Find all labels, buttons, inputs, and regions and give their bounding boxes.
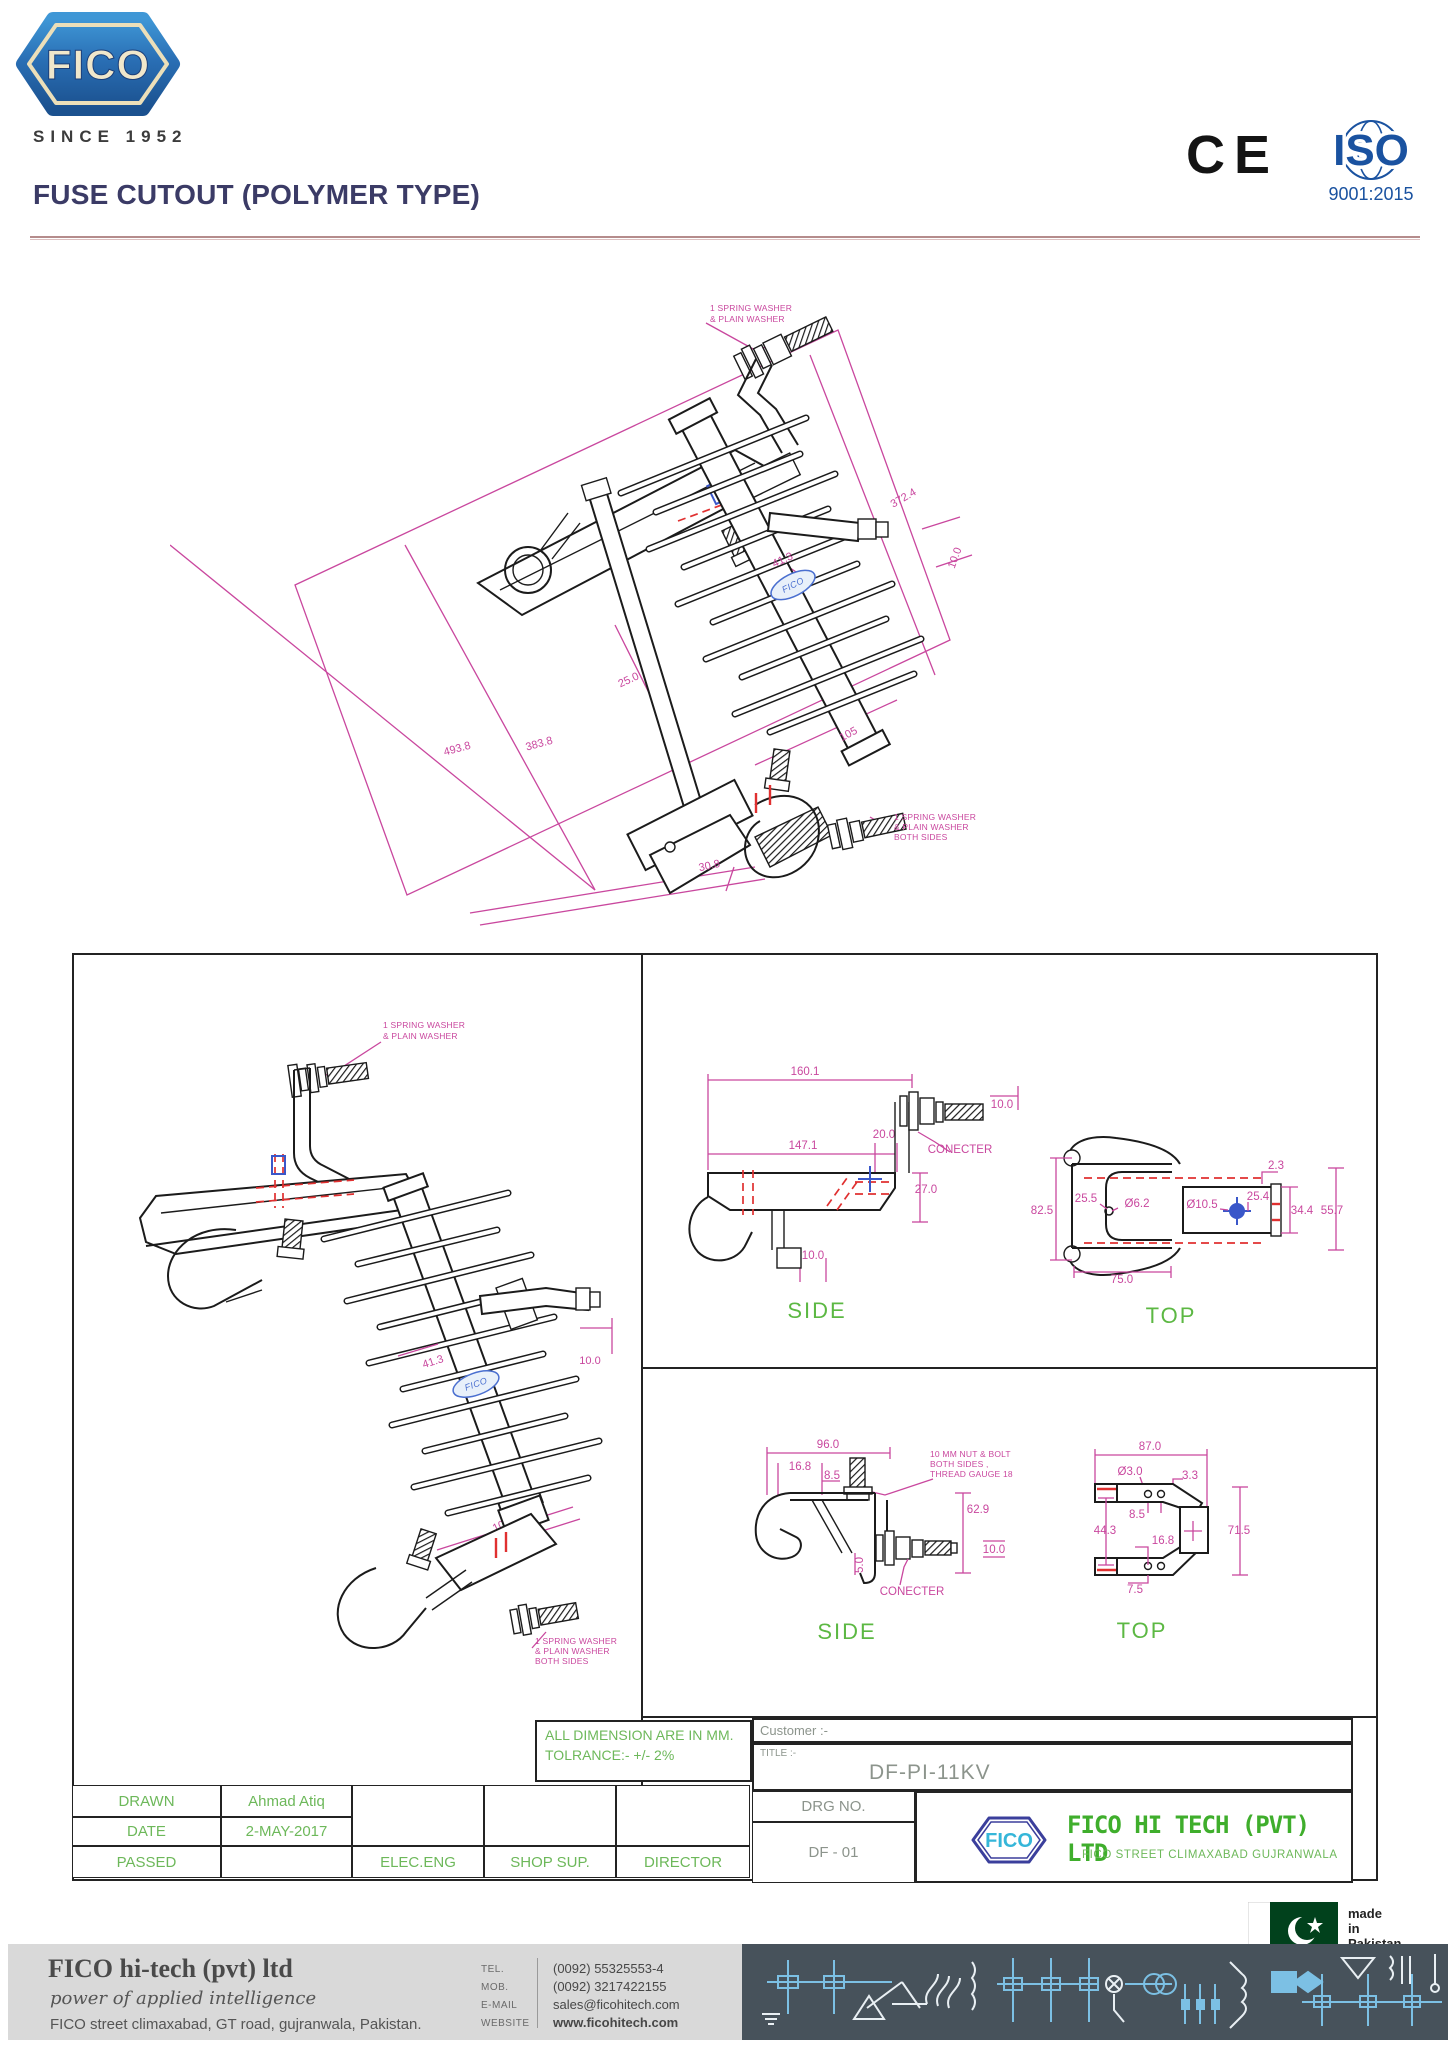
header-rule-shadow <box>30 239 1420 240</box>
side-view-upper-drawing: 160.1 10.0 20.0 147.1 CONECTER 27.0 10.0 <box>650 1010 1050 1340</box>
tolerance-note-box: ALL DIMENSION ARE IN MM. TOLRANCE:- +/- … <box>535 1720 752 1782</box>
isometric-cutout-drawing: FICO <box>170 245 990 945</box>
sv1-dim-foot: 10.0 <box>802 1250 824 1262</box>
drawing-title-value: DF-PI-11KV <box>869 1761 991 1785</box>
tv2-dim-tab: 7.5 <box>1127 1584 1143 1596</box>
sv1-view-label: SIDE <box>787 1298 846 1323</box>
fv-dim-terminal-label: 10.0 <box>579 1355 600 1367</box>
iso-note-bottom-3: BOTH SIDES <box>894 832 948 842</box>
footer-email-label: E-MAIL <box>481 2000 517 2011</box>
sv2-connector-label: CONECTER <box>880 1586 945 1598</box>
fv-note-bottom-3: BOTH SIDES <box>535 1656 589 1666</box>
dim-tube-label: 25.0 <box>616 670 640 690</box>
ce-mark-logo: CE <box>1186 124 1279 186</box>
sv2-dim-foot: 5.0 <box>854 1557 866 1573</box>
sv1-connector-label: CONECTER <box>928 1144 993 1156</box>
tv1-dia-large: Ø10.5 <box>1186 1199 1217 1211</box>
tv1-dim-plate: 2.3 <box>1268 1160 1284 1172</box>
fv-insulator-body <box>384 1173 543 1516</box>
iso-note-bottom-1: 1 SPRING WASHER <box>894 812 976 822</box>
dim-overall-label: 372.4 <box>889 486 919 510</box>
tv2-dim-lip: 3.3 <box>1182 1470 1198 1482</box>
frame-horizontal-divider-1 <box>641 1367 1378 1369</box>
iso-subtext: 9001:2015 <box>1328 184 1413 204</box>
fv-note-top-1: 1 SPRING WASHER <box>383 1020 465 1030</box>
sv2-note-1: 10 MM NUT & BOLT <box>930 1449 1011 1459</box>
title-label: TITLE :- <box>760 1748 796 1759</box>
company-cell: FICO FICO HI TECH (PVT) LTD FICO STREET … <box>915 1791 1353 1883</box>
tv2-dim-hole-gap: 8.5 <box>1129 1509 1145 1521</box>
frame-vertical-divider <box>641 953 643 1785</box>
date-value-cell: 2-MAY-2017 <box>221 1817 352 1846</box>
terminal-arm <box>768 513 860 541</box>
footer-company-name: FICO hi-tech (pvt) ltd <box>48 1954 293 1984</box>
sv2-dim-step: 8.5 <box>824 1470 840 1482</box>
tv1-dim-hole-offset2: 25.4 <box>1247 1191 1270 1203</box>
footer-email-value: sales@ficohitech.com <box>553 1997 680 2012</box>
footer-schematic-band <box>742 1944 1448 2040</box>
sv2-view-label: SIDE <box>817 1619 876 1644</box>
company-logo: FICO <box>965 1813 1053 1867</box>
footer-website-value: www.ficohitech.com <box>553 2015 678 2030</box>
sv2-note-3: THREAD GAUGE 18 <box>930 1469 1013 1479</box>
tv2-head <box>1180 1507 1208 1553</box>
sig2-space-cell <box>484 1785 616 1846</box>
made-in-line1: made <box>1348 1906 1401 1921</box>
tv1-view-label: TOP <box>1146 1303 1197 1328</box>
tv2-dim-hole-offset: 16.8 <box>1152 1535 1174 1547</box>
tv2-dia-hole: Ø3.0 <box>1118 1466 1143 1478</box>
fv-hinge-side-bolt <box>509 1596 579 1637</box>
fv-note-bottom-2: & PLAIN WASHER <box>535 1646 610 1656</box>
tolerance-note-line1: ALL DIMENSION ARE IN MM. <box>545 1727 742 1743</box>
drawn-label-cell: DRAWN <box>72 1785 221 1817</box>
iso-note-top-2: & PLAIN WASHER <box>710 314 785 324</box>
tv2-dim-total: 87.0 <box>1139 1441 1161 1453</box>
drawn-value-cell: Ahmad Atiq <box>221 1785 352 1817</box>
tv1-dim-hole-offset: 25.5 <box>1075 1193 1097 1205</box>
iso-note-top-1: 1 SPRING WASHER <box>710 303 792 313</box>
footer-tagline: power of applied intelligence <box>50 1988 316 2009</box>
dim-bounding-box <box>295 330 950 895</box>
sv1-dim-height: 27.0 <box>915 1184 937 1196</box>
footer-circuit-schematic <box>742 1944 1448 2040</box>
side-view-lower-drawing: 96.0 16.8 8.5 10 MM NUT & BOLT BOTH SIDE… <box>700 1395 1100 1695</box>
sv2-side-bolt <box>876 1531 957 1565</box>
passed-value-cell <box>221 1846 352 1878</box>
sv1-dim-total: 160.1 <box>791 1066 820 1078</box>
fico-logo: FICO <box>13 8 183 120</box>
sv2-hook <box>756 1493 801 1559</box>
sig3-label-cell: DIRECTOR <box>616 1846 750 1878</box>
drg-no-value-cell: DF - 01 <box>752 1822 915 1883</box>
tv1-dia-small: Ø6.2 <box>1125 1198 1150 1210</box>
footer-left-band: FICO hi-tech (pvt) ltd power of applied … <box>8 1944 742 2040</box>
footer-mob-label: MOB. <box>481 1982 509 1993</box>
passed-label-cell: PASSED <box>72 1846 221 1878</box>
iso-text: ISO <box>1333 126 1409 175</box>
fv-note-top-2: & PLAIN WASHER <box>383 1031 458 1041</box>
drawing-sheet-page: FICO SINCE 1952 FUSE CUTOUT (POLYMER TYP… <box>0 0 1448 2048</box>
footer-tel-label: TEL. <box>481 1964 504 1975</box>
company-address: FICO STREET CLIMAXABAD GUJRANWALA <box>1082 1849 1338 1861</box>
sv1-foot <box>777 1248 801 1268</box>
drg-no-label-cell: DRG NO. <box>752 1791 915 1822</box>
tv2-dim-height-inner: 44.3 <box>1094 1525 1116 1537</box>
sv2-note-2: BOTH SIDES , <box>930 1459 989 1469</box>
iso-logo: ISO 9001:2015 <box>1298 112 1448 210</box>
sig3-space-cell <box>616 1785 750 1846</box>
dim-height-inner-label: 383.8 <box>524 735 554 754</box>
sv1-dim-offset: 20.0 <box>873 1129 895 1141</box>
iso-note-bottom-2: & PLAIN WASHER <box>894 822 969 832</box>
fv-lower-hook <box>338 1568 426 1648</box>
sig1-space-cell <box>352 1785 484 1846</box>
made-in-line2: in <box>1348 1921 1401 1936</box>
tv1-dim-width: 75.0 <box>1111 1274 1133 1286</box>
customer-row: Customer :- <box>752 1718 1353 1743</box>
sv2-dim-hook: 16.8 <box>789 1461 811 1473</box>
tv1-spring-arm-top <box>1068 1137 1180 1164</box>
tv1-dim-inner: 34.4 <box>1291 1205 1314 1217</box>
fico-logo-text: FICO <box>46 41 150 88</box>
tv2-view-label: TOP <box>1117 1618 1168 1643</box>
page-title: FUSE CUTOUT (POLYMER TYPE) <box>33 179 480 211</box>
sig2-label-cell: SHOP SUP. <box>484 1846 616 1878</box>
tv1-clamp-body <box>1072 1164 1172 1248</box>
front-view-drawing: 1 SPRING WASHER & PLAIN WASHER <box>76 958 636 1713</box>
tv1-dim-outer: 55.7 <box>1321 1205 1343 1217</box>
tv1-dim-height: 82.5 <box>1031 1205 1053 1217</box>
sv2-dim-height: 62.9 <box>967 1504 989 1516</box>
fv-top-bolt <box>288 1055 370 1098</box>
footer-website-label: WEBSITE <box>481 2018 530 2029</box>
sig1-label-cell: ELEC.ENG <box>352 1846 484 1878</box>
header-rule <box>30 236 1420 238</box>
tolerance-note-line2: TOLRANCE:- +/- 2% <box>545 1747 742 1763</box>
footer-address: FICO street climaxabad, GT road, gujranw… <box>50 2016 422 2033</box>
sv1-dim-bolt: 10.0 <box>991 1099 1013 1111</box>
top-view-upper-drawing: 82.5 25.5 Ø6.2 Ø10.5 25.4 2.3 34.4 55.7 … <box>1020 1080 1440 1360</box>
sv1-dim-inner: 147.1 <box>789 1140 818 1152</box>
fv-dim-insulator-label: 41.3 <box>421 1353 445 1371</box>
sv2-dim-total: 96.0 <box>817 1439 839 1451</box>
sv2-dim-bolt: 10.0 <box>983 1544 1005 1556</box>
footer-contact-divider <box>537 1958 538 2028</box>
top-view-lower-drawing: 87.0 Ø3.0 3.3 8.5 44.3 16.8 71.5 7.5 TOP <box>1050 1395 1380 1675</box>
fv-hinge-assembly <box>338 1495 580 1648</box>
since-text: SINCE 1952 <box>33 127 188 147</box>
sv1-bolt <box>900 1092 983 1130</box>
footer-tel-value: (0092) 55325553-4 <box>553 1961 664 1976</box>
footer-mob-value: (0092) 3217422155 <box>553 1979 667 1994</box>
dim-height-outer-label: 493.8 <box>442 740 472 759</box>
tv2-dim-height-total: 71.5 <box>1228 1525 1250 1537</box>
hinge-assembly <box>627 748 907 893</box>
date-label-cell: DATE <box>72 1817 221 1846</box>
title-row: TITLE :- DF-PI-11KV <box>752 1743 1353 1791</box>
hinge-top-bolt <box>765 748 794 791</box>
fv-note-bottom-1: 1 SPRING WASHER <box>535 1636 617 1646</box>
company-logo-text: FICO <box>985 1830 1033 1852</box>
